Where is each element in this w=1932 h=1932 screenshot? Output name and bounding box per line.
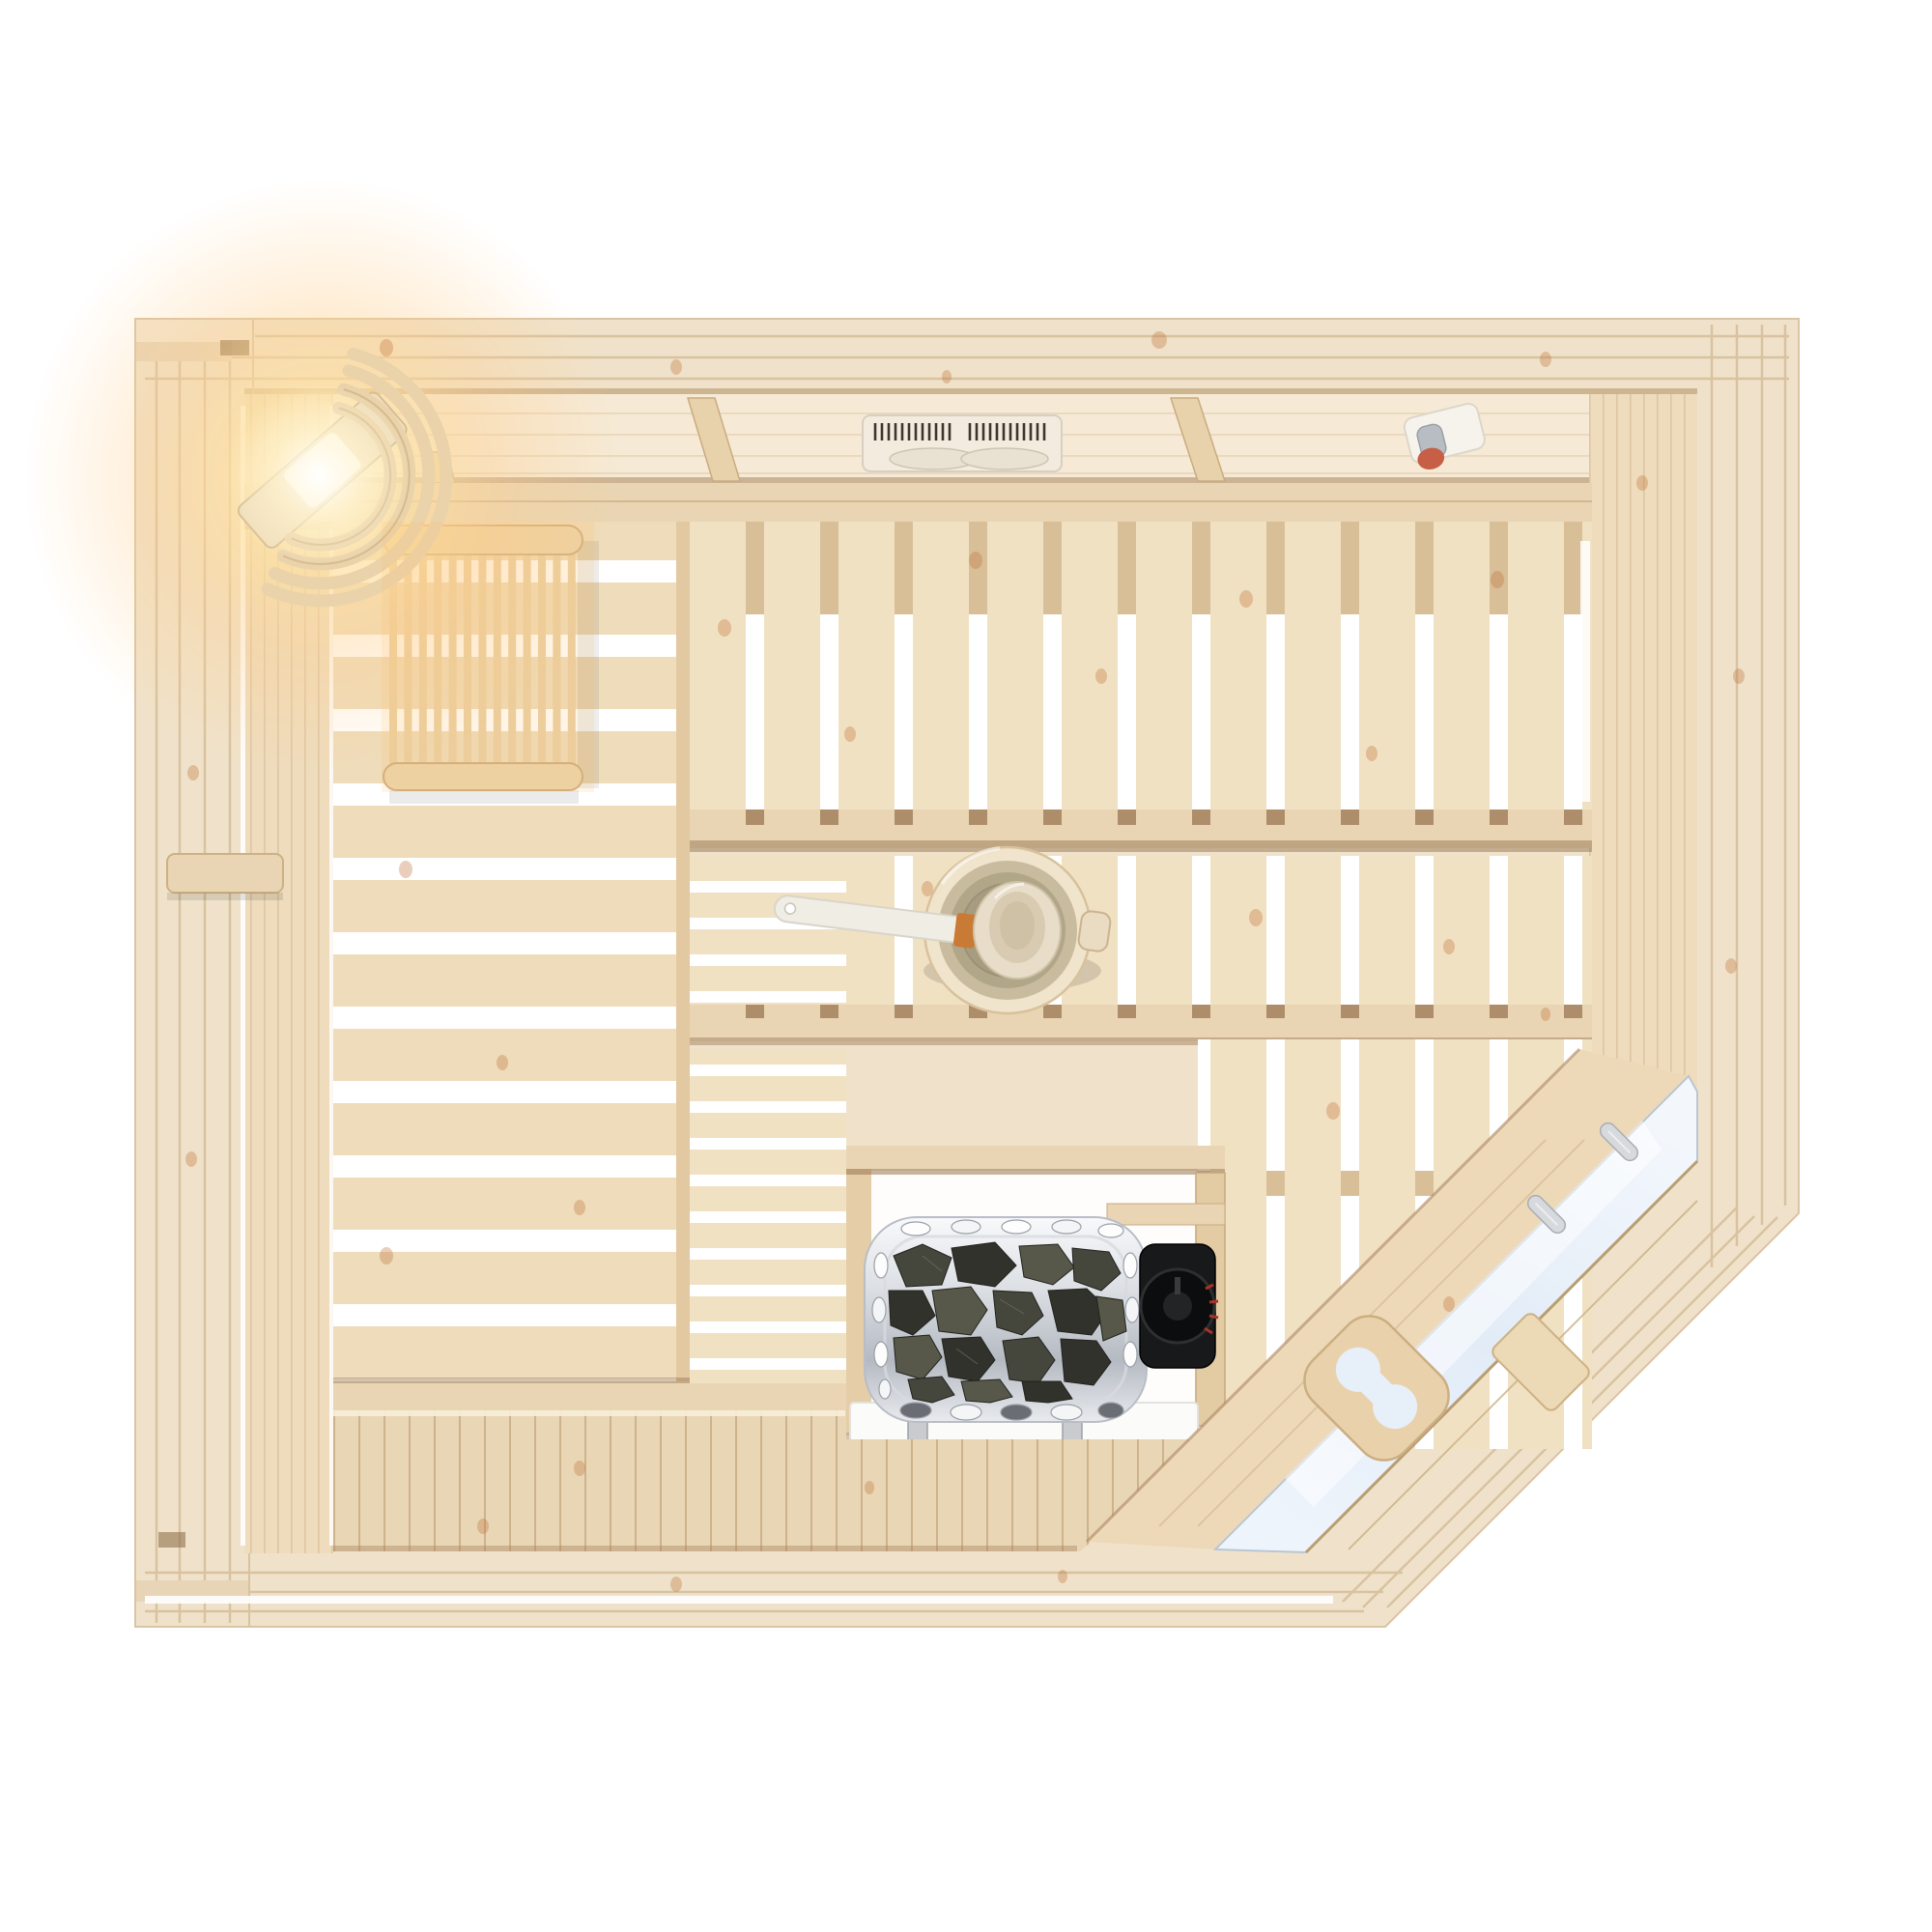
upper-bench-wall-gap <box>1580 541 1590 802</box>
warm-light-wash <box>382 522 594 792</box>
sauna-top-view-render <box>0 0 1932 1932</box>
vent-diffuser-right <box>961 448 1048 469</box>
base-frame-gap <box>145 1596 1333 1604</box>
sauna-heater <box>821 1217 1218 1457</box>
left-bench-front-rail <box>333 1381 846 1414</box>
ventilation-grille <box>863 415 1062 471</box>
left-bench-side-rail <box>676 522 690 1383</box>
bucket-handle-knob <box>1077 910 1111 952</box>
heater-control-dial <box>1140 1244 1218 1368</box>
right-wall-paneling <box>1589 394 1697 1113</box>
upper-bench <box>690 522 1592 852</box>
heater-guard-rail <box>1107 1204 1225 1225</box>
step-bench <box>690 856 846 1383</box>
wall-handle-bar <box>167 854 283 900</box>
upper-bench-gap-shade <box>690 522 1592 614</box>
niche-top-rail <box>846 1146 1225 1169</box>
